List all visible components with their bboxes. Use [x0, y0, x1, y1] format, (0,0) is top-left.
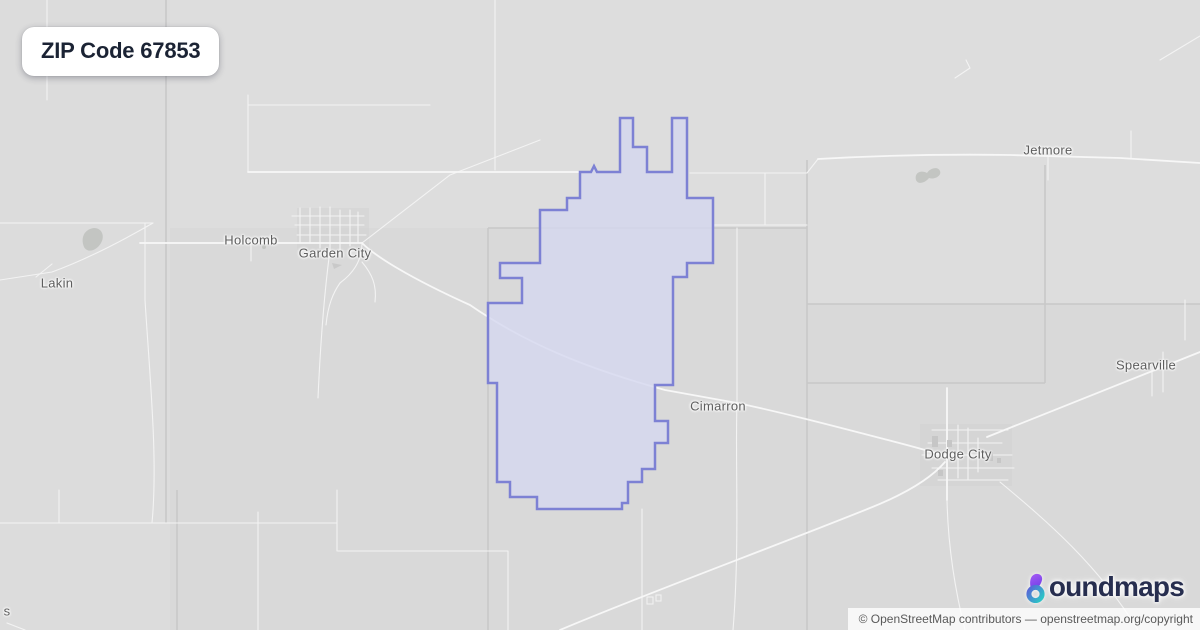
boundmaps-logo-icon [1024, 573, 1050, 603]
boundmaps-logo-text: oundmaps [1049, 571, 1184, 603]
attribution-bar: © OpenStreetMap contributors — openstree… [848, 608, 1200, 630]
zip-code-badge: ZIP Code 67853 [22, 27, 219, 76]
zip-code-badge-label: ZIP Code 67853 [41, 38, 200, 63]
map-page: LakinHolcombGarden CityJetmoreCimarronDo… [0, 0, 1200, 630]
attribution-copyright-link[interactable]: openstreetmap.org/copyright [1040, 612, 1193, 626]
map-canvas[interactable] [0, 0, 1200, 630]
attribution-text: © OpenStreetMap contributors [859, 612, 1022, 626]
boundmaps-logo[interactable]: oundmaps [1024, 571, 1184, 603]
